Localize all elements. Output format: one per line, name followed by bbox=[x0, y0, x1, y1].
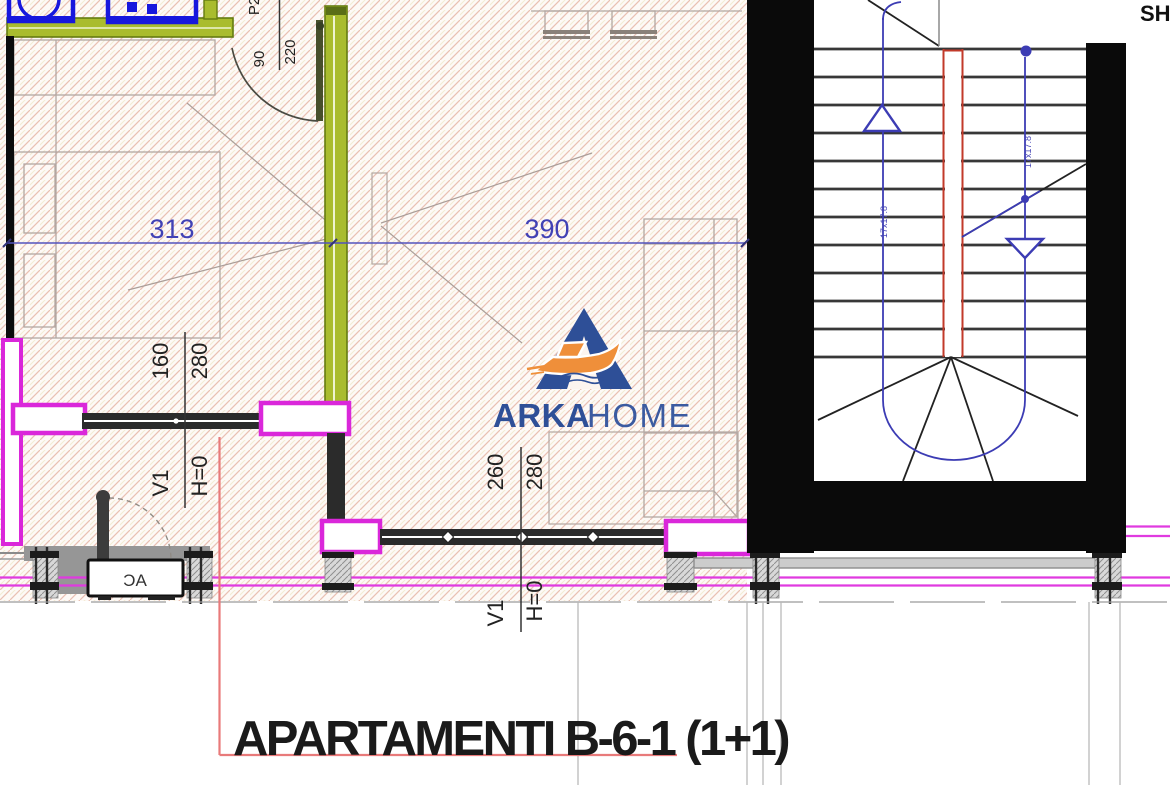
svg-text:H=0: H=0 bbox=[522, 581, 547, 622]
svg-text:HOME: HOME bbox=[587, 397, 692, 434]
svg-text:220: 220 bbox=[282, 39, 299, 64]
svg-text:H=0: H=0 bbox=[187, 456, 212, 497]
svg-text:90: 90 bbox=[251, 51, 268, 68]
svg-text:P2: P2 bbox=[246, 0, 263, 15]
svg-text:260: 260 bbox=[483, 454, 508, 491]
svg-text:SHK: SHK bbox=[1140, 1, 1170, 26]
svg-text:17x17.8: 17x17.8 bbox=[879, 206, 889, 238]
svg-text:AC: AC bbox=[123, 571, 147, 590]
svg-text:ARKA: ARKA bbox=[493, 397, 590, 434]
svg-text:280: 280 bbox=[187, 343, 212, 380]
svg-text:17x17.8: 17x17.8 bbox=[1023, 136, 1033, 168]
svg-text:APARTAMENTI B-6-1 (1+1): APARTAMENTI B-6-1 (1+1) bbox=[233, 712, 788, 766]
svg-text:160: 160 bbox=[148, 343, 173, 380]
svg-text:280: 280 bbox=[522, 454, 547, 491]
svg-text:313: 313 bbox=[149, 214, 194, 244]
svg-text:V1: V1 bbox=[483, 600, 508, 627]
svg-text:V1: V1 bbox=[148, 470, 173, 497]
svg-text:390: 390 bbox=[524, 214, 569, 244]
